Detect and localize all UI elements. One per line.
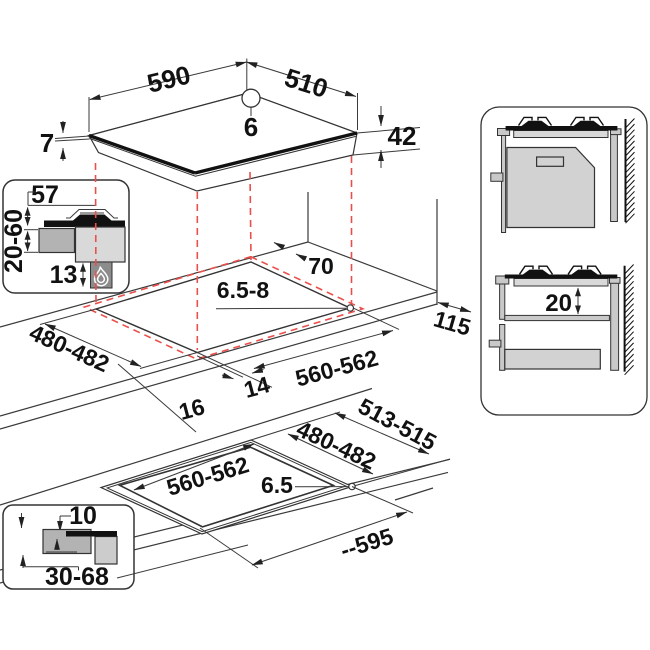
svg-text:13: 13 [50,261,78,289]
svg-text:6.5: 6.5 [261,472,293,498]
svg-text:6.5-8: 6.5-8 [217,277,270,303]
svg-text:10: 10 [69,502,97,530]
svg-text:42: 42 [388,121,417,151]
svg-text:30-68: 30-68 [45,563,109,591]
svg-text:20: 20 [545,290,572,317]
svg-text:6: 6 [244,112,258,142]
svg-text:70: 70 [308,253,334,279]
svg-text:57: 57 [31,181,59,209]
svg-text:20-60: 20-60 [0,209,28,273]
svg-text:7: 7 [40,128,54,158]
